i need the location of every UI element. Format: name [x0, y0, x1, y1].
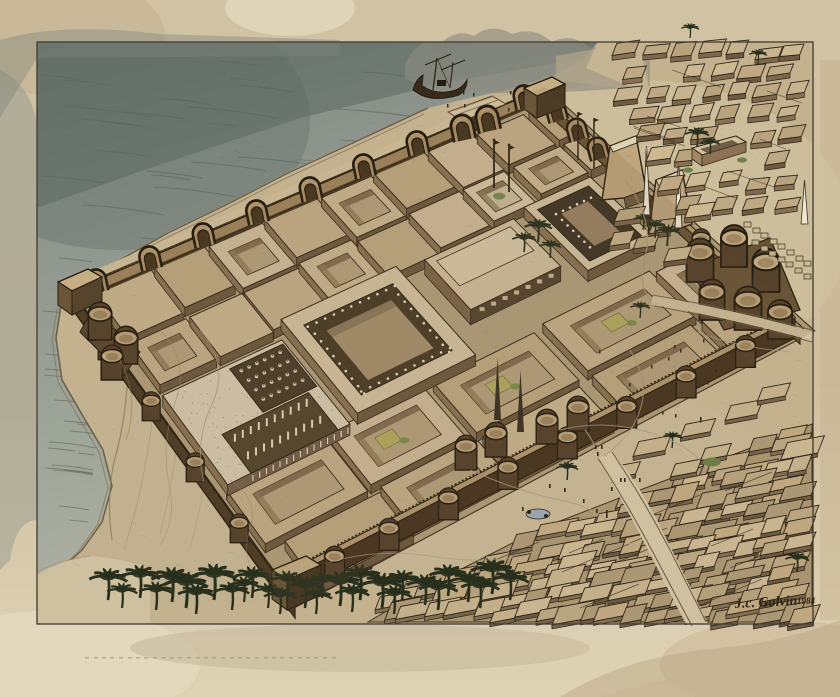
svg-text:1984: 1984	[797, 596, 816, 606]
